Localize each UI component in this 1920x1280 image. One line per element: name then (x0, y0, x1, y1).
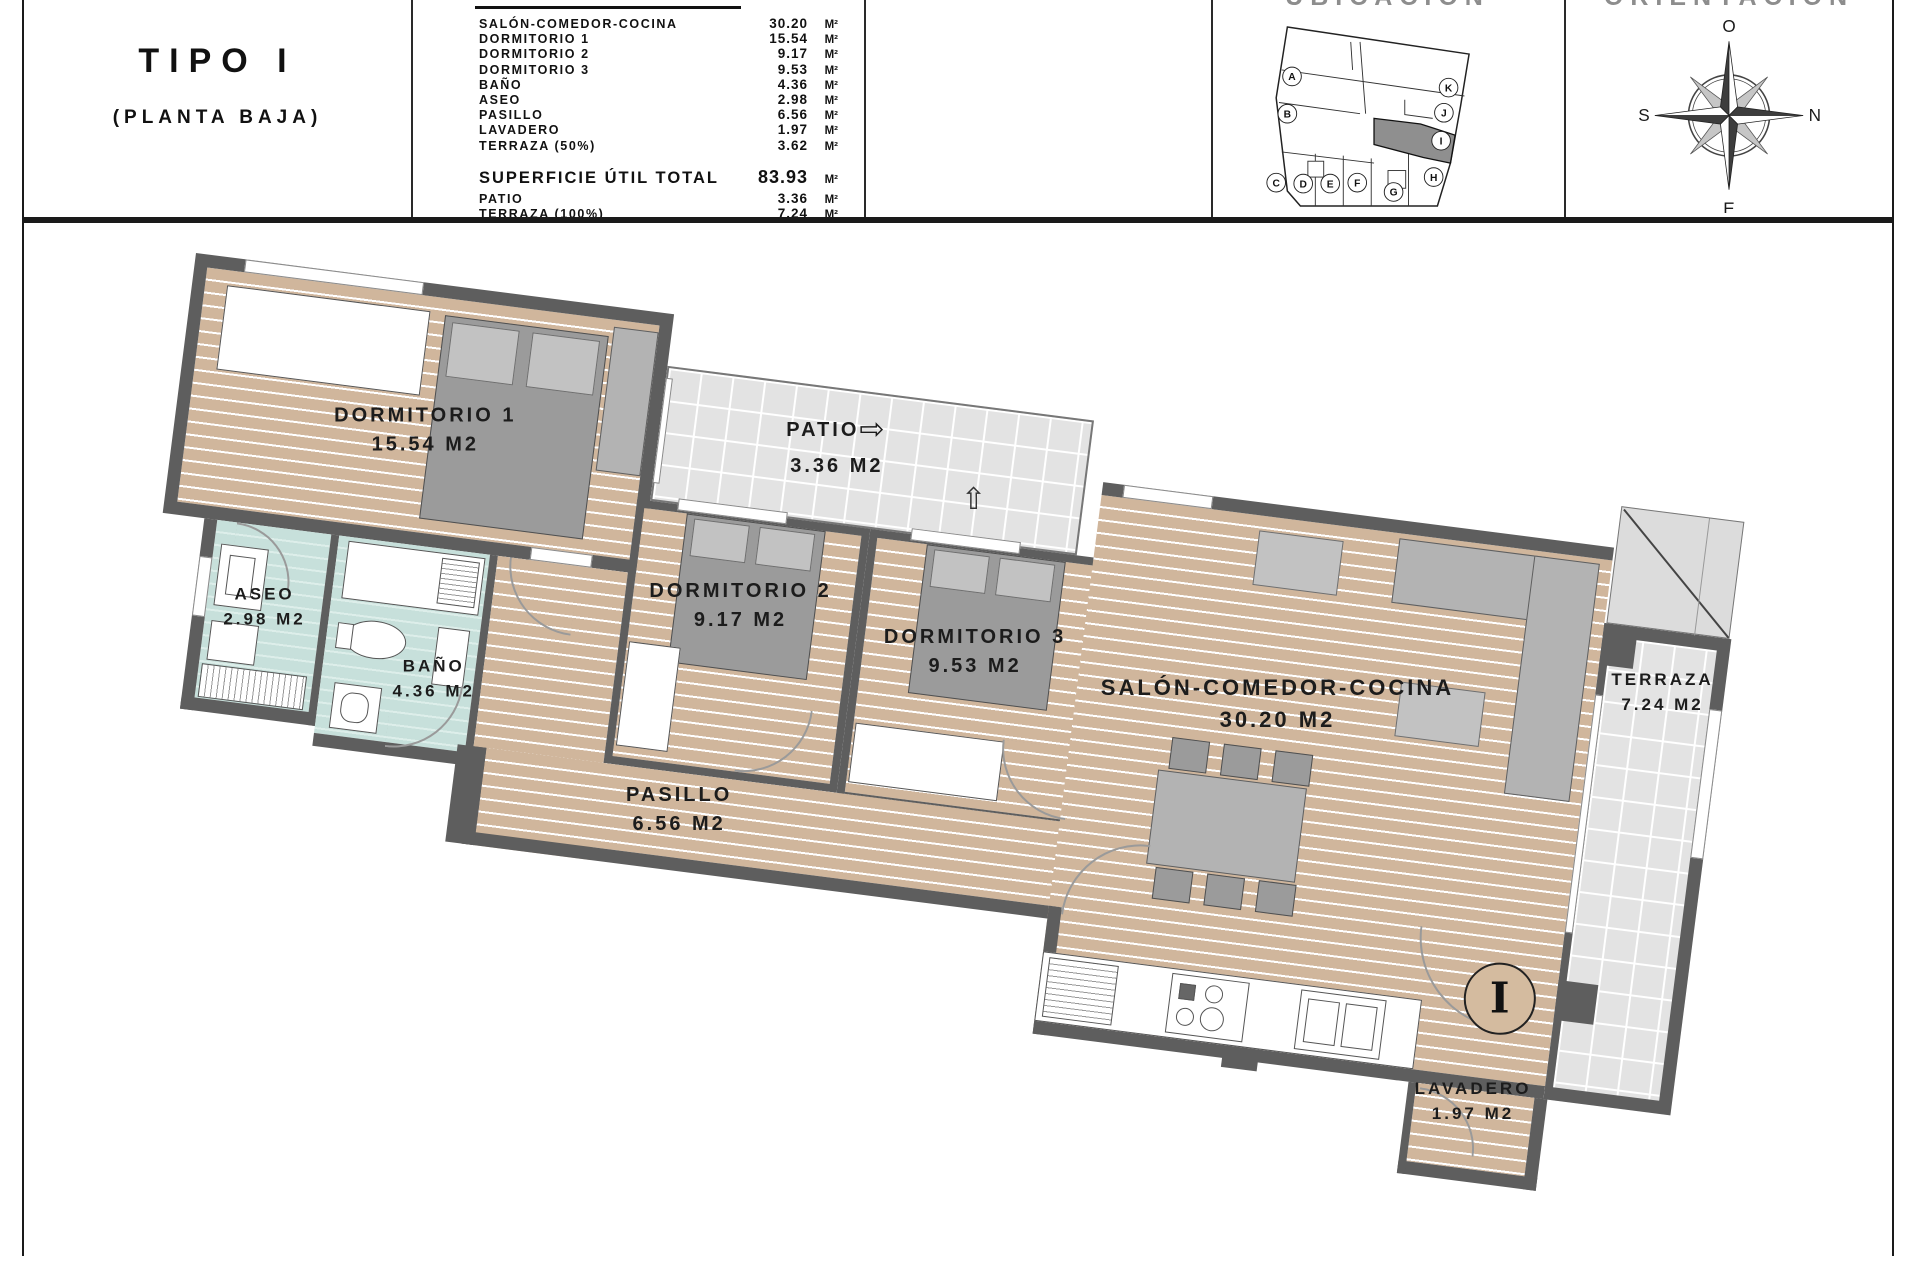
unit-letter: E (1326, 179, 1333, 190)
row-label: BAÑO (479, 78, 754, 92)
room-label-lavadero: LAVADERO 1.97 M2 (1381, 1077, 1566, 1126)
row-unit: M² (808, 19, 838, 31)
pillow (995, 558, 1055, 603)
row-label: TERRAZA (100%) (479, 207, 754, 217)
unit-letter: H (1429, 173, 1436, 184)
row-value: 3.62 (754, 138, 808, 153)
header-divider (1564, 0, 1566, 217)
porch-roof-area (1606, 506, 1744, 639)
dishwasher (1042, 957, 1119, 1025)
row-label: DORMITORIO 3 (479, 63, 754, 77)
table-row: PASILLO6.56M² (479, 107, 838, 122)
chair (1152, 867, 1194, 904)
unit-letter: K (1444, 83, 1452, 94)
orientation-header: ORIENTACIÓN (1564, 0, 1894, 12)
table-row: DORMITORIO 115.54M² (479, 31, 838, 46)
row-label: PATIO (479, 192, 754, 206)
chair (1203, 874, 1245, 911)
surface-table: SALÓN-COMEDOR-COCINA30.20M² DORMITORIO 1… (411, 0, 864, 217)
row-label: LAVADERO (479, 123, 754, 137)
row-value: 1.97 (754, 122, 808, 137)
total-value: 83.93 (754, 167, 808, 188)
row-unit: M² (808, 110, 838, 122)
compass-label-west: O (1722, 18, 1735, 36)
chair (1255, 880, 1297, 917)
room-label-pasillo: PASILLO 6.56 M2 (559, 781, 799, 839)
location-header: UBICACIÓN (1211, 0, 1564, 12)
table-header-underline (475, 6, 741, 9)
unit-letter: C (1272, 178, 1280, 189)
room-label-terraza: TERRAZA 7.24 M2 (1590, 668, 1735, 717)
table-row: SALÓN-COMEDOR-COCINA30.20M² (479, 16, 838, 31)
row-label: SALÓN-COMEDOR-COCINA (479, 17, 754, 31)
cooktop (1165, 973, 1250, 1042)
row-unit: M² (808, 194, 838, 206)
tv-cabinet (1252, 530, 1343, 595)
compass-label-north: N (1809, 105, 1821, 125)
row-label: PASILLO (479, 108, 754, 122)
site-location-map: A B C D E F G H I J K (1233, 14, 1543, 217)
vent-arrow-right-icon: ⇨ (859, 413, 887, 446)
unit-letter: J (1441, 109, 1447, 120)
row-unit: M² (808, 65, 838, 77)
row-unit: M² (808, 80, 838, 92)
unit-letter-highlighted: I (1439, 136, 1442, 147)
table-row: DORMITORIO 39.53M² (479, 62, 838, 77)
room-label-aseo: ASEO 2.98 M2 (190, 583, 340, 632)
row-label: DORMITORIO 1 (479, 32, 754, 46)
pillow (526, 332, 600, 395)
unit-letter-I: I (1490, 978, 1510, 1020)
row-unit: M² (808, 174, 838, 186)
table-row: LAVADERO1.97M² (479, 122, 838, 137)
row-label: ASEO (479, 93, 754, 107)
row-unit: M² (808, 34, 838, 46)
header-divider (1211, 0, 1213, 217)
unit-letter: G (1389, 188, 1397, 199)
total-label: SUPERFICIE ÚTIL TOTAL (479, 169, 754, 188)
header-divider (411, 0, 413, 217)
plan-type-title: TIPO I (24, 42, 411, 81)
pillow (755, 527, 815, 572)
table-total-row: SUPERFICIE ÚTIL TOTAL83.93M² (479, 167, 838, 191)
row-unit: M² (808, 49, 838, 61)
compass-label-south: S (1638, 105, 1649, 125)
wall-pillar (1554, 980, 1599, 1025)
row-value: 4.36 (754, 77, 808, 92)
row-value: 3.36 (754, 191, 808, 206)
row-value: 9.53 (754, 62, 808, 77)
room-label-dormitorio-1: DORMITORIO 1 15.54 M2 (290, 402, 560, 460)
pillow (689, 518, 749, 563)
row-value: 9.17 (754, 46, 808, 61)
chair (1168, 737, 1210, 774)
row-value: 2.98 (754, 92, 808, 107)
apartment-plan: DORMITORIO 1 15.54 M2 PATIO⇨ 3.36 M2 ⇧ A… (99, 253, 1822, 1215)
header-spacer-cell (864, 0, 1211, 217)
table-row: PATIO3.36M² (479, 191, 838, 206)
unit-letter: D (1299, 179, 1306, 190)
room-label-patio: PATIO⇨ 3.36 M2 (717, 408, 957, 481)
vent-arrow-up-icon: ⇧ (961, 482, 986, 517)
room-label-salon: SALÓN-COMEDOR-COCINA 30.20 M2 (1092, 672, 1462, 736)
table-row: TERRAZA (50%)3.62M² (479, 138, 838, 153)
chair (1272, 750, 1314, 787)
table-row: ASEO2.98M² (479, 92, 838, 107)
location-cell: UBICACIÓN A B C D E F G H (1211, 0, 1564, 217)
wall-pillar (1599, 623, 1638, 669)
compass-label-east: E (1723, 199, 1734, 213)
title-block: TIPO I (PLANTA BAJA) (24, 0, 411, 217)
room-label-dormitorio-3: DORMITORIO 3 9.53 M2 (858, 623, 1093, 681)
unit-letter: A (1288, 72, 1296, 83)
orientation-cell: ORIENTACIÓN (1564, 0, 1894, 217)
unit-letter: B (1283, 109, 1290, 120)
row-label: TERRAZA (50%) (479, 139, 754, 153)
pillow (445, 322, 519, 385)
table-row: BAÑO4.36M² (479, 77, 838, 92)
row-unit: M² (808, 209, 838, 217)
compass-rose-icon: O N E S (1629, 18, 1829, 213)
row-label: DORMITORIO 2 (479, 47, 754, 61)
table-row: TERRAZA (100%)7.24M² (479, 206, 838, 217)
pillow (930, 549, 990, 594)
row-value: 6.56 (754, 107, 808, 122)
row-value: 15.54 (754, 31, 808, 46)
dining-table (1146, 769, 1307, 882)
row-unit: M² (808, 141, 838, 153)
unit-letter: F (1354, 178, 1360, 189)
row-value: 30.20 (754, 16, 808, 31)
floorplan-sheet: TIPO I (PLANTA BAJA) SALÓN-COMEDOR-COCIN… (0, 0, 1920, 1280)
chair (1220, 744, 1262, 781)
row-unit: M² (808, 95, 838, 107)
plan-canvas: DORMITORIO 1 15.54 M2 PATIO⇨ 3.36 M2 ⇧ A… (24, 223, 1892, 1256)
table-row: DORMITORIO 29.17M² (479, 46, 838, 61)
row-unit: M² (808, 125, 838, 137)
kitchen-sink (1294, 989, 1387, 1059)
plan-floor-subtitle: (PLANTA BAJA) (24, 107, 411, 129)
row-value: 7.24 (754, 206, 808, 217)
header-divider (864, 0, 866, 217)
room-label-bano: BAÑO 4.36 M2 (344, 655, 524, 704)
room-label-dormitorio-2: DORMITORIO 2 9.17 M2 (626, 577, 856, 635)
